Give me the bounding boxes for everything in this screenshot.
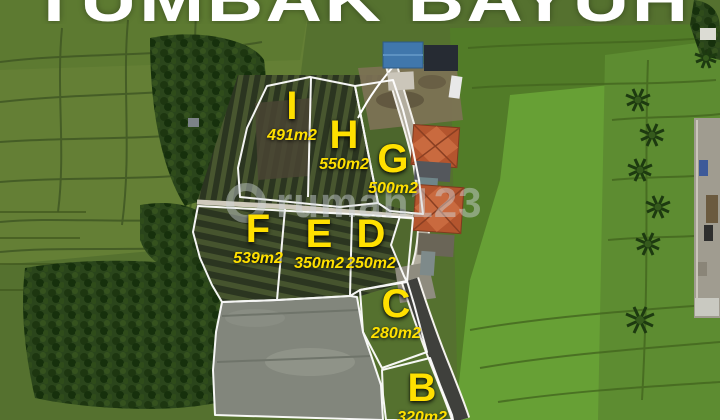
gray-paddy: [213, 297, 383, 420]
fields-right: [450, 24, 720, 420]
roadside-road: [694, 118, 720, 318]
aerial-listing-image: TUMBAK BAYUH rumah123 I 491m2 H 550m2 G …: [0, 0, 720, 420]
aerial-photo-background: [0, 0, 720, 420]
small-shed: [695, 298, 719, 316]
